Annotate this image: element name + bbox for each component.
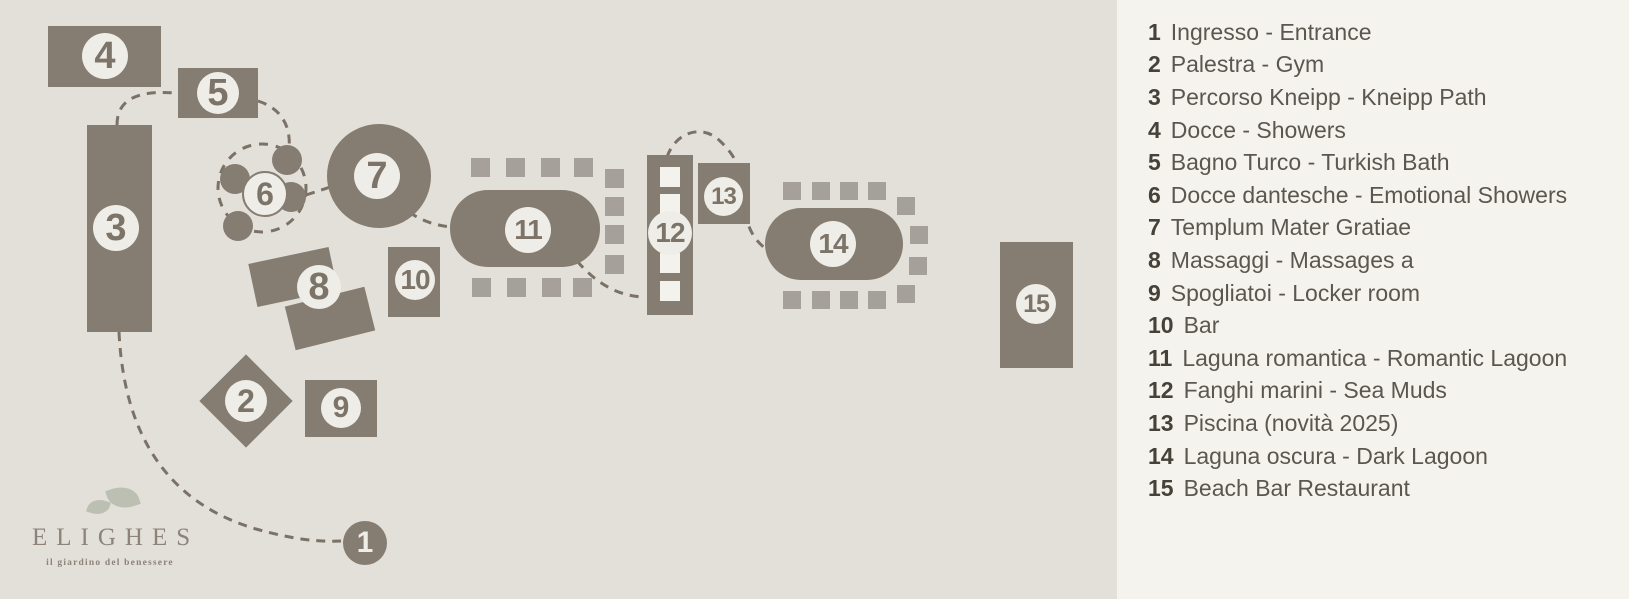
spa-garden-map: 4 5 3 6 7 8 10 11 — [0, 0, 1629, 599]
path-3-to-5 — [117, 92, 176, 125]
legend-label: Laguna romantica - Romantic Lagoon — [1182, 345, 1567, 372]
deck-dot — [783, 291, 801, 309]
legend-number: 7 — [1148, 214, 1161, 241]
deck-dot — [868, 291, 886, 309]
legend-item-11: 11Laguna romantica - Romantic Lagoon — [1148, 342, 1629, 375]
deck-dot — [605, 169, 624, 188]
legend-label: Templum Mater Gratiae — [1171, 214, 1411, 241]
deck-dot — [506, 158, 525, 177]
legend-label: Piscina (novità 2025) — [1184, 410, 1399, 437]
legend-number: 6 — [1148, 182, 1161, 209]
legend-item-5: 5Bagno Turco - Turkish Bath — [1148, 146, 1629, 179]
deck-dot — [840, 182, 858, 200]
legend-item-1: 1Ingresso - Entrance — [1148, 16, 1629, 49]
legend-number: 13 — [1148, 410, 1174, 437]
legend-item-12: 12Fanghi marini - Sea Muds — [1148, 375, 1629, 408]
legend-item-4: 4Docce - Showers — [1148, 114, 1629, 147]
marker-2-badge: 2 — [225, 380, 267, 422]
legend-label: Ingresso - Entrance — [1171, 19, 1372, 46]
marker-4-badge: 4 — [82, 33, 128, 79]
marker-9-badge: 9 — [321, 388, 361, 428]
path-7-to-11 — [409, 212, 451, 227]
legend-label: Docce - Showers — [1171, 117, 1346, 144]
legend-number: 8 — [1148, 247, 1161, 274]
marker-14-badge: 14 — [810, 221, 856, 267]
legend-item-8: 8Massaggi - Massages a — [1148, 244, 1629, 277]
deck-dot — [910, 226, 928, 244]
marker-13-badge: 13 — [704, 177, 743, 216]
emotional-shower-dot — [223, 211, 253, 241]
legend-number: 5 — [1148, 149, 1161, 176]
legend-panel: 1Ingresso - Entrance 2Palestra - Gym 3Pe… — [1117, 0, 1629, 599]
legend-item-15: 15Beach Bar Restaurant — [1148, 472, 1629, 505]
marker-10-badge: 10 — [395, 260, 435, 300]
marker-6-badge: 6 — [242, 171, 288, 217]
legend-label: Laguna oscura - Dark Lagoon — [1184, 443, 1488, 470]
legend-label: Massaggi - Massages a — [1171, 247, 1414, 274]
deck-dot — [574, 158, 593, 177]
legend-item-10: 10Bar — [1148, 309, 1629, 342]
map-area: 4 5 3 6 7 8 10 11 — [0, 0, 1117, 599]
legend-number: 2 — [1148, 51, 1161, 78]
legend-number: 3 — [1148, 84, 1161, 111]
mud-cell — [660, 281, 680, 301]
deck-dot — [783, 182, 801, 200]
legend-number: 9 — [1148, 280, 1161, 307]
marker-7-badge: 7 — [354, 153, 400, 199]
legend-label: Spogliatoi - Locker room — [1171, 280, 1420, 307]
legend-label: Bar — [1184, 312, 1220, 339]
legend-number: 12 — [1148, 377, 1174, 404]
deck-dot — [812, 182, 830, 200]
deck-dot — [868, 182, 886, 200]
deck-dot — [542, 278, 561, 297]
legend-item-6: 6Docce dantesche - Emotional Showers — [1148, 179, 1629, 212]
legend-number: 1 — [1148, 19, 1161, 46]
deck-dot — [605, 197, 624, 216]
legend-label: Palestra - Gym — [1171, 51, 1324, 78]
legend-item-13: 13Piscina (novità 2025) — [1148, 407, 1629, 440]
marker-1-badge: 1 — [343, 521, 387, 565]
legend-number: 11 — [1148, 345, 1172, 372]
legend-number: 10 — [1148, 312, 1174, 339]
legend-item-7: 7Templum Mater Gratiae — [1148, 212, 1629, 245]
legend-label: Percorso Kneipp - Kneipp Path — [1171, 84, 1487, 111]
legend-number: 15 — [1148, 475, 1174, 502]
marker-11-badge: 11 — [505, 207, 551, 253]
deck-dot — [812, 291, 830, 309]
deck-dot — [840, 291, 858, 309]
brand-name: ELIGHES — [32, 524, 227, 552]
path-5-to-6 — [258, 101, 289, 149]
legend-item-14: 14Laguna oscura - Dark Lagoon — [1148, 440, 1629, 473]
deck-dot — [605, 255, 624, 274]
legend-label: Beach Bar Restaurant — [1184, 475, 1410, 502]
deck-dot — [909, 257, 927, 275]
deck-dot — [472, 278, 491, 297]
legend-label: Bagno Turco - Turkish Bath — [1171, 149, 1450, 176]
deck-dot — [897, 285, 915, 303]
legend-item-2: 2Palestra - Gym — [1148, 49, 1629, 82]
mud-cell — [660, 167, 680, 187]
legend-number: 14 — [1148, 443, 1174, 470]
deck-dot — [605, 225, 624, 244]
marker-8-badge: 8 — [297, 265, 341, 309]
legend-label: Docce dantesche - Emotional Showers — [1171, 182, 1567, 209]
marker-5-badge: 5 — [197, 72, 239, 114]
deck-dot — [573, 278, 592, 297]
legend-label: Fanghi marini - Sea Muds — [1184, 377, 1447, 404]
legend-number: 4 — [1148, 117, 1161, 144]
mud-cell — [660, 253, 680, 273]
deck-dot — [541, 158, 560, 177]
emotional-shower-dot — [272, 145, 302, 175]
marker-3-badge: 3 — [93, 205, 139, 251]
walking-path-dashes — [0, 0, 1117, 599]
deck-dot — [471, 158, 490, 177]
brand-tagline: il giardino del benessere — [30, 558, 190, 568]
legend-item-3: 3Percorso Kneipp - Kneipp Path — [1148, 81, 1629, 114]
legend-item-9: 9Spogliatoi - Locker room — [1148, 277, 1629, 310]
marker-12-badge: 12 — [648, 211, 692, 255]
deck-dot — [507, 278, 526, 297]
deck-dot — [897, 197, 915, 215]
marker-15-badge: 15 — [1016, 284, 1056, 324]
